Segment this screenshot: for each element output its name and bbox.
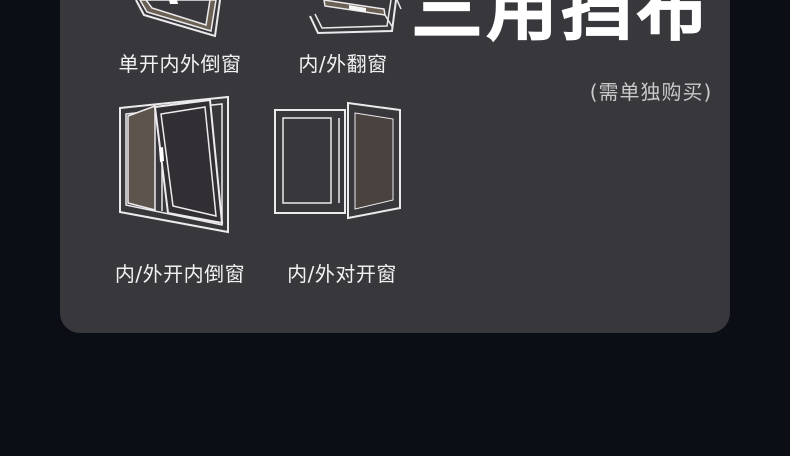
single-tilt-window-label: 单开内外倒窗 [100,53,260,75]
tilt-turn-window-icon [112,93,234,245]
headline-title: 三用挡布 [412,0,712,44]
headline-note: (需单独购买) [551,76,730,105]
tilt-turn-window-label: 内/外开内倒窗 [90,263,270,285]
casement-window-label: 内/外对开窗 [262,263,422,285]
top-hung-window-label: 内/外翻窗 [263,53,423,75]
top-hung-window-icon [293,0,405,45]
single-tilt-window-icon [131,0,226,40]
casement-window-icon [270,93,404,245]
product-image: 单开内外倒窗 内/外翻窗 内/外开内倒窗 [0,0,790,456]
window-types-panel: 单开内外倒窗 内/外翻窗 内/外开内倒窗 [60,0,730,333]
